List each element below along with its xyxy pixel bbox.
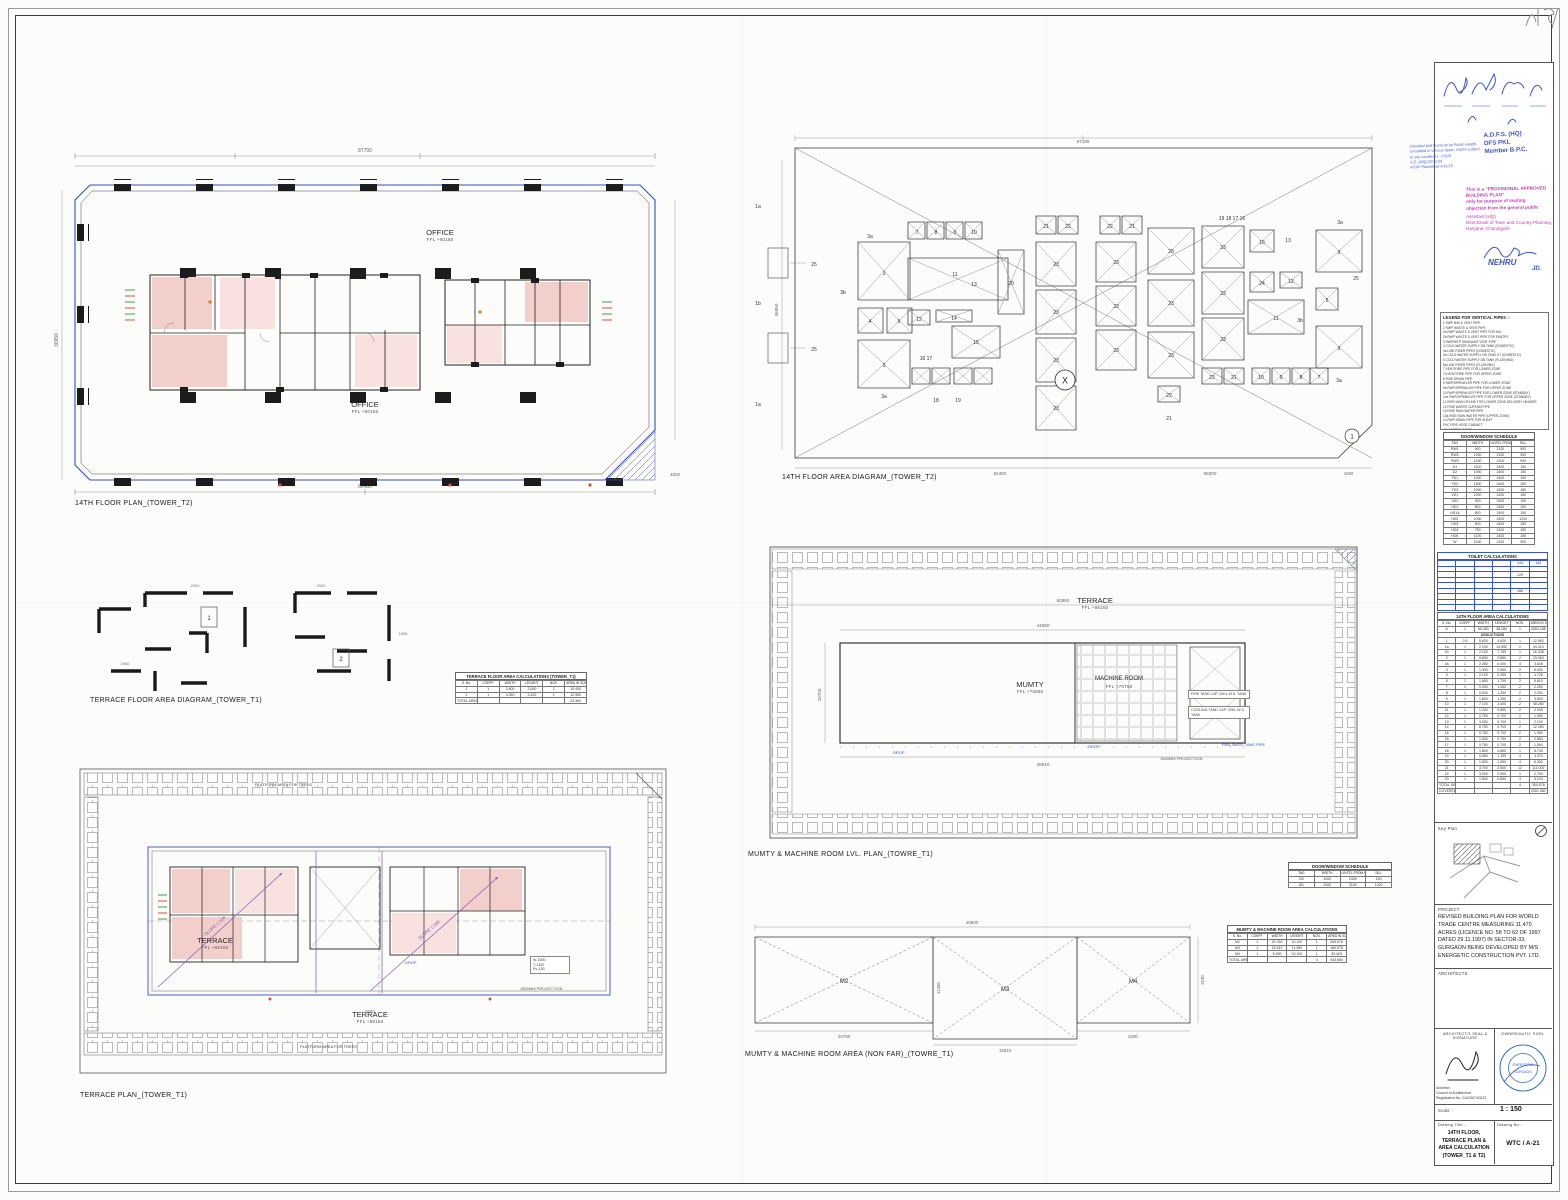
table-cell: 23.360 <box>565 698 587 704</box>
svg-text:4: 4 <box>869 319 872 325</box>
svg-text:M4: M4 <box>1129 979 1138 985</box>
dim-label: 38810 <box>1037 762 1050 767</box>
room-label-office-2: OFFICE FFL +60150 <box>320 400 410 415</box>
svg-text:1985: 1985 <box>399 631 409 636</box>
room-ffl: FFL +70750 <box>1092 684 1146 690</box>
planter-strip-left <box>772 571 792 812</box>
caption-mumty-plan: MUMTY & MACHINE ROOM LVL. PLAN_(TOWRE_T1… <box>748 851 933 858</box>
sprinkler-dots <box>269 998 492 1001</box>
svg-text:5: 5 <box>898 319 901 325</box>
nonfar-diagram-drawing: M2 M3 M4 46900 20760 15910 5290 3190 113… <box>740 915 1210 1055</box>
nonfar-labels: M2 M3 M4 <box>840 979 1138 993</box>
svg-text:24: 24 <box>1259 281 1265 287</box>
wall-fragments <box>99 593 389 691</box>
table-title: DOOR/WINDOW SCHEDULE <box>1288 862 1392 870</box>
dim-label: 62480 <box>994 471 1007 476</box>
svg-text:25: 25 <box>811 347 817 353</box>
table-title: TOILET CALCULATIONS <box>1437 552 1548 560</box>
svg-text:8: 8 <box>1300 375 1303 381</box>
table-cell <box>521 698 543 704</box>
svg-text:11350: 11350 <box>936 982 941 994</box>
drawing-title-label: Drawing Title:- <box>1438 1123 1465 1127</box>
column-row-top <box>90 179 640 191</box>
svg-text:10: 10 <box>971 230 977 236</box>
dim-label: 87700 <box>358 148 372 154</box>
svg-text:25: 25 <box>811 262 817 268</box>
svg-text:25: 25 <box>1353 276 1359 282</box>
svg-text:3: 3 <box>1338 250 1341 256</box>
room-ffl: FFL +66150 <box>1055 605 1135 611</box>
dim-label: 20700 <box>817 688 822 701</box>
svg-text:2000: 2000 <box>191 583 201 588</box>
tank-note-1: FIRE TANK CAP. 20KL W.S. TANK <box>1188 690 1250 699</box>
room-label-terrace-1: TERRACE FFL +66150 <box>175 936 255 951</box>
note-line: Rv-150 <box>533 967 567 972</box>
room-name: TERRACE <box>1077 596 1113 605</box>
table-cell <box>543 698 565 704</box>
room-name: OFFICE <box>426 228 454 237</box>
svg-text:5290: 5290 <box>1128 1034 1138 1039</box>
svg-text:20760: 20760 <box>838 1034 851 1039</box>
drawing-number-label: Drawing No:- <box>1497 1123 1522 1127</box>
table-cell <box>1492 605 1510 610</box>
pencil-mark-icon <box>1518 2 1564 32</box>
svg-text:23: 23 <box>1053 358 1059 364</box>
stamp-line: Haryana, Chandigarh <box>1466 226 1562 232</box>
table-cell: 1000 <box>1466 539 1489 545</box>
planter-strip-top <box>84 773 662 795</box>
tag-boxes <box>201 607 349 667</box>
svg-text:20: 20 <box>1008 281 1014 287</box>
svg-text:15910: 15910 <box>999 1048 1012 1053</box>
svg-text:8: 8 <box>935 230 938 236</box>
legend-box: LEGEND FOR VERTICAL PIPES :- 1 RWP B/W &… <box>1440 312 1549 430</box>
caption-nonfar-diagram: MUMTY & MACHINE ROOM AREA (NON FAR)_(TOW… <box>745 1051 953 1058</box>
dim-label: 87195 <box>1077 139 1090 144</box>
table-row: W1240021001200 <box>1289 882 1392 888</box>
table-cell: W1 <box>1289 882 1315 888</box>
caption-area-diagram-t2: 14TH FLOOR AREA DIAGRAM_(TOWER_T2) <box>782 474 937 481</box>
planter-label-top: PLATFORM AREA FOR TREES <box>255 782 312 787</box>
table-cell <box>1247 957 1267 963</box>
svg-text:3190: 3190 <box>1200 975 1205 985</box>
table-cell <box>1267 957 1287 963</box>
table-cell: 1200 <box>1366 882 1392 888</box>
room-ffl: FFL +60150 <box>320 409 410 415</box>
fragment-tag: 1 <box>207 616 211 622</box>
drop-label: DROP <box>893 750 905 755</box>
svg-text:22: 22 <box>1209 375 1215 381</box>
svg-text:14: 14 <box>951 316 957 322</box>
table-title: 14TH FLOOR AREA CALCULATIONS <box>1437 612 1548 620</box>
room-name: OFFICE <box>351 400 379 409</box>
table-cell: 2100 <box>1340 882 1366 888</box>
svg-text:3b: 3b <box>840 290 846 296</box>
registration-block: Architect Council of Architecture Regist… <box>1436 1086 1486 1101</box>
dim-label: 4820 <box>1344 471 1354 476</box>
legend-title: LEGEND FOR VERTICAL PIPES :- <box>1443 315 1546 320</box>
svg-text:3: 3 <box>883 271 886 277</box>
svg-text:23: 23 <box>1053 262 1059 268</box>
terrace-core-right <box>390 867 525 955</box>
north-crossed-circle-icon <box>1534 824 1548 838</box>
owner-sign-label: OWNER/AUTH. SIGN. <box>1497 1032 1549 1036</box>
table-cell <box>477 698 499 704</box>
svg-text:12: 12 <box>1288 279 1294 285</box>
mumty-area-table: MUMTY & MACHINE ROOM AREA CALCULATIONS S… <box>1227 925 1347 963</box>
table-cell: 2100 <box>1489 539 1512 545</box>
room-ffl: FFL +60150 <box>395 237 485 243</box>
seal-vertical-divider <box>1494 1028 1495 1104</box>
table-title: MUMTY & MACHINE ROOM AREA CALCULATIONS <box>1227 925 1347 933</box>
svg-text:9: 9 <box>954 230 957 236</box>
tank-note-2: COOLING TANK CAP. 20KL W.S. TANK <box>1188 706 1250 719</box>
svg-text:19: 19 <box>955 398 961 404</box>
svg-text:23: 23 <box>1168 301 1174 307</box>
svg-text:46900: 46900 <box>966 920 979 925</box>
pipe-note: RWL 3NOS. TAKE PIPE <box>1222 742 1265 747</box>
table-cell <box>1511 605 1529 610</box>
svg-text:23: 23 <box>1113 304 1119 310</box>
svg-text:18: 18 <box>933 398 939 404</box>
door-schedule-table: DOOR/WINDOW SCHEDULE TAGWIDTHLINTEL FROM… <box>1443 432 1535 545</box>
public-health-note: Checked and found ok by Public Health ci… <box>1410 141 1499 171</box>
dimension-lines <box>782 135 1372 468</box>
svg-text:16 17: 16 17 <box>920 356 933 362</box>
svg-text:5: 5 <box>1326 298 1329 304</box>
room-name: TERRACE <box>352 1010 388 1019</box>
projection-label: 1500MM PROJECTION <box>520 986 562 991</box>
svg-text:23: 23 <box>1168 353 1174 359</box>
svg-text:21: 21 <box>1043 224 1049 230</box>
terrace-note-box: W-1500 T-1300 Rv-150 <box>530 956 570 974</box>
drop-label: DROP <box>1088 744 1100 749</box>
caption-floor-plan-t2: 14TH FLOOR PLAN_(TOWER_T2) <box>75 500 193 507</box>
svg-text:13: 13 <box>1285 238 1291 244</box>
dim-label: 4820 <box>670 472 681 477</box>
stamp-city-text: GURGAON <box>1514 1070 1532 1074</box>
svg-text:11: 11 <box>952 272 957 278</box>
seal-divider <box>1434 1028 1552 1029</box>
svg-text:23: 23 <box>1053 310 1059 316</box>
nehru-designation: JD. <box>1532 266 1541 272</box>
svg-text:3b: 3b <box>1297 318 1303 324</box>
svg-text:21: 21 <box>1231 375 1237 381</box>
table-cell <box>1456 605 1474 610</box>
riser-markers <box>158 895 167 919</box>
riser-markers-right <box>602 302 612 320</box>
svg-text:22: 22 <box>1065 224 1071 230</box>
svg-text:7: 7 <box>916 230 919 236</box>
registration-line: Registration No. CA/2007/40222 <box>1436 1096 1486 1101</box>
legend-item: AD ACCESS DOOR <box>1443 428 1546 430</box>
architects-divider <box>1434 968 1552 969</box>
floor-plan-t2-drawing: 87700 62480 36950 4820 <box>30 140 690 510</box>
table-row: TOTAL AREA23.360 <box>456 698 587 704</box>
svg-text:21: 21 <box>1129 224 1135 230</box>
svg-text:21: 21 <box>1166 416 1172 422</box>
column-row-left <box>77 202 89 462</box>
planter-strip-bottom <box>84 1033 662 1055</box>
nonfar-dims: 46900 20760 15910 5290 3190 11350 <box>838 920 1205 1053</box>
svg-text:23: 23 <box>1168 249 1174 255</box>
keyplan-map <box>1446 836 1524 902</box>
riser-markers-left <box>125 290 135 320</box>
scale-value: 1 : 150 <box>1500 1106 1522 1113</box>
table-cell: COVERED AREA = (A - B) <box>1438 788 1456 794</box>
svg-text:13: 13 <box>971 282 977 288</box>
scale-divider <box>1434 1104 1552 1105</box>
architect-signature-icon <box>1438 1042 1490 1084</box>
room-ffl: FFL +70650 <box>995 689 1065 695</box>
svg-text:3960: 3960 <box>121 661 131 666</box>
svg-text:1a: 1a <box>755 402 761 408</box>
terrace-shaft <box>310 867 380 949</box>
architects-label: ARCHITECTS <box>1438 971 1468 976</box>
mumty-plan-drawing: 60950 44950 38810 20700 <box>745 535 1390 850</box>
project-label: PROJECT <box>1438 907 1460 912</box>
room-ffl: FFL +66150 <box>330 1019 410 1025</box>
table-cell: 3 <box>1307 957 1327 963</box>
architect-seal-label: ARCHITECT'S SEAL & SIGNATURE <box>1438 1032 1492 1040</box>
table-row: TOTAL AREA3443.683 <box>1228 957 1347 963</box>
nehru-name: NEHRU <box>1488 258 1516 267</box>
room-numbers: 1a 25 1b 25 1a 3a 3 7 8 9 10 11 13 3b 4 … <box>755 204 1359 422</box>
svg-text:16: 16 <box>1259 240 1265 246</box>
owner-stamp-icon: ENERGETIC GURGAON <box>1496 1040 1550 1096</box>
dim-label: 44950 <box>1037 623 1050 628</box>
project-divider <box>1434 904 1552 905</box>
table-row <box>1438 605 1548 610</box>
svg-text:23: 23 <box>1113 348 1119 354</box>
table-cell <box>1287 957 1307 963</box>
dtcp-stamp: Assistant (HQ) Directorate of Town and C… <box>1466 214 1562 233</box>
keyplan-divider <box>1434 822 1552 823</box>
caption-terrace-area-diagram: TERRACE FLOOR AREA DIAGRAM_(TOWER_T1) <box>90 697 262 704</box>
svg-text:23: 23 <box>1053 406 1059 412</box>
area-diagram-t2-drawing: 87195 62480 66000 36950 4820 1a 25 <box>740 130 1390 480</box>
svg-text:23: 23 <box>1220 291 1226 297</box>
table-cell: TOTAL AREA <box>456 698 478 704</box>
keyplan-label: Key Plan <box>1438 826 1457 831</box>
svg-text:12: 12 <box>916 317 922 323</box>
planter-strip-right <box>648 797 662 1031</box>
project-text: REVISED BUILDING PLAN FOR WORLD TRADE CE… <box>1438 914 1548 961</box>
drawing-vertical-divider <box>1494 1120 1495 1164</box>
column-row-bottom <box>90 474 640 486</box>
core-left <box>150 273 420 392</box>
table-cell: 2400 <box>1314 882 1340 888</box>
drawing-sheet: { "captions": { "floor_plan_t2": "14TH F… <box>0 0 1568 1200</box>
svg-text:2000: 2000 <box>317 583 327 588</box>
planter-label-bottom: PLATFORM AREA FOR TREES <box>300 1044 357 1049</box>
room-label-terrace-2: TERRACE FFL +66150 <box>330 1010 410 1025</box>
dim-label: 36950 <box>774 303 779 316</box>
table-cell <box>1438 605 1456 610</box>
floor-area-table: 14TH FLOOR AREA CALCULATIONS S. No.COEFF… <box>1437 612 1548 794</box>
drawing-divider <box>1434 1120 1552 1121</box>
svg-text:3: 3 <box>883 363 886 369</box>
table-cell: TOTAL AREA <box>1228 957 1248 963</box>
drop-label: DROP <box>405 960 417 965</box>
svg-text:15: 15 <box>973 340 979 346</box>
diagonals <box>795 148 1372 458</box>
svg-text:M3: M3 <box>1001 987 1010 993</box>
approval-signatures-icon <box>1438 64 1550 132</box>
dim-label: 36950 <box>54 333 60 347</box>
table-cell <box>1492 788 1510 794</box>
svg-text:23: 23 <box>1220 245 1226 251</box>
table-row: COVERED AREA = (A - B)2301.460 <box>1438 788 1548 794</box>
svg-text:10: 10 <box>1258 375 1264 381</box>
svg-text:1a: 1a <box>755 204 761 210</box>
fragment-dims: 2000 3960 2000 1985 <box>121 583 409 666</box>
table-row: W10002100900 <box>1444 539 1535 545</box>
room-label-terrace-mumty-lvl: TERRACE FFL +66150 <box>1055 596 1135 611</box>
table-cell <box>1456 788 1474 794</box>
terrace-area-table: TERRACE FLOOR AREA CALCULATIONS (TOWER_T… <box>455 672 587 704</box>
svg-text:M2: M2 <box>840 979 849 985</box>
room-label-office-1: OFFICE FFL +60150 <box>395 228 485 243</box>
toilet-calc-table: TOILET CALCULATIONS 144140125186 <box>1437 552 1548 611</box>
nonfar-diagonals <box>755 937 1190 1039</box>
corner-hatch <box>605 430 655 480</box>
table-title: TERRACE FLOOR AREA CALCULATIONS (TOWER_T… <box>455 672 587 680</box>
table-cell: 900 <box>1512 539 1535 545</box>
room-name: MACHINE ROOM <box>1095 676 1143 682</box>
core-right <box>445 278 590 367</box>
legend-item: 11 RISE MAIN UPLINE FOR LOWER ZONE DELIV… <box>1443 400 1546 405</box>
svg-text:9: 9 <box>1280 375 1283 381</box>
table-cell <box>1474 605 1492 610</box>
room-ffl: FFL +66150 <box>175 945 255 951</box>
svg-text:3a: 3a <box>881 394 887 400</box>
terrace-plan-t1-drawing: SLOPE 1:100 SLOPE 1:100 9000 <box>70 755 680 1090</box>
room-name: MUMTY <box>1016 680 1044 689</box>
table-cell <box>1529 605 1547 610</box>
planter-strip-left <box>84 797 98 1031</box>
table-cell <box>1474 788 1492 794</box>
caption-terrace-plan-t1: TERRACE PLAN_(TOWER_T1) <box>80 1092 187 1099</box>
svg-text:1b: 1b <box>755 301 761 307</box>
terrace-fragments-drawing: 1 2 2000 3960 2000 1985 <box>85 575 465 705</box>
svg-text:3a: 3a <box>867 234 873 240</box>
fragment-tag: 2 <box>339 657 343 663</box>
room-name: TERRACE <box>197 936 233 945</box>
svg-text:22: 22 <box>1166 393 1172 399</box>
svg-text:23: 23 <box>1220 337 1226 343</box>
table-cell: 2301.460 <box>1529 788 1547 794</box>
provisional-stamp: This is a "PROVISIONAL APPROVED BUILDING… <box>1466 185 1562 211</box>
dim-label: 66000 <box>1204 471 1217 476</box>
nonfar-outlines <box>755 937 1190 1039</box>
table-cell: W <box>1444 539 1467 545</box>
projection-label: 1500MM PROJECTION <box>1160 756 1202 761</box>
room-label-mumty: MUMTY FFL +70650 <box>995 680 1065 695</box>
table-cell <box>1511 788 1529 794</box>
table-cell: 443.683 <box>1327 957 1347 963</box>
table-title: DOOR/WINDOW SCHEDULE <box>1443 432 1535 440</box>
room-label-machine-room: MACHINE ROOM FFL +70750 <box>1092 676 1146 689</box>
svg-text:3: 3 <box>1338 346 1341 352</box>
svg-text:3a: 3a <box>1337 220 1343 226</box>
svg-text:11: 11 <box>1273 316 1278 322</box>
svg-text:23: 23 <box>1113 260 1119 266</box>
scale-label: Scale : <box>1438 1108 1453 1113</box>
door-schedule-small-table: DOOR/WINDOW SCHEDULE TAGWIDTHLINTEL FROM… <box>1288 862 1392 888</box>
planter-strip-top <box>772 549 1355 569</box>
legend-list: 1 RWP B/W & VENT PIPE2 RWP WASTE & VENT … <box>1443 321 1546 430</box>
drawing-title: 14TH FLOOR, TERRACE PLAN & AREA CALCULAT… <box>1436 1130 1492 1160</box>
planter-strip-bottom <box>772 814 1355 834</box>
table-cell <box>499 698 521 704</box>
drawing-number: WTC / A-21 <box>1497 1140 1549 1147</box>
planter-strip-right <box>1335 571 1355 812</box>
slab-outline <box>75 185 655 480</box>
svg-text:22: 22 <box>1107 224 1113 230</box>
svg-text:3a: 3a <box>1336 378 1342 384</box>
svg-text:19 18 17 16: 19 18 17 16 <box>1219 216 1246 222</box>
x-marker: X <box>1062 376 1068 386</box>
svg-text:7: 7 <box>1318 375 1321 381</box>
